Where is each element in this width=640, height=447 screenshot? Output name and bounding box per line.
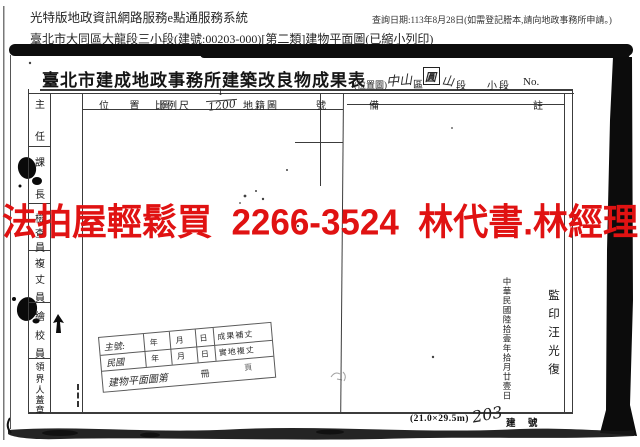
table-right-border-inner [564, 93, 565, 413]
building-no-label: 建 號 [506, 415, 542, 429]
section-char-box: 圓 [423, 67, 440, 85]
seal-keeper-stamp: 監印汪光復 [545, 289, 561, 391]
mini-book-label: 冊 [200, 366, 210, 380]
col-remark-right: 註 [533, 97, 543, 112]
mini-row1-note: 成果補丈 [217, 328, 254, 342]
table-left-border [28, 89, 29, 413]
district-value-handwritten: 中山 [385, 69, 413, 90]
number-cell-line [295, 142, 343, 143]
mini-minguo: 民國 [106, 355, 125, 370]
paper-size-label: (21.0×29.5m) [410, 414, 469, 424]
staff-char: 丈 [32, 271, 48, 286]
document-subtitle: 臺北市大同區大龍段三小段(建號:00203-000)[第二類]建物平面圖(已縮小… [30, 30, 433, 47]
mini-row2-note: 實地複丈 [218, 344, 255, 358]
table-top-border-inner [28, 93, 574, 94]
margin-column-divider [82, 93, 83, 413]
pencil-note-marks [331, 372, 345, 381]
printout-page: 光特版地政資訊網路服務e點通服務系統 查詢日期:113年8月28日(如需登記謄本… [0, 0, 640, 447]
staff-char: 章 [32, 403, 48, 416]
staff-column-divider [50, 93, 51, 413]
mini-page-label: 頁 [244, 362, 253, 374]
location-map-note: (位置圖) [354, 78, 387, 91]
mini-day: 日 [199, 332, 208, 344]
col-scale-label: 比例尺 [155, 97, 191, 112]
staff-char: 主 [32, 96, 48, 111]
staff-char: 課 [32, 154, 48, 169]
mini-year2: 年 [151, 353, 160, 365]
system-title: 光特版地政資訊網路服務e點通服務系統 [30, 7, 248, 26]
date-stamp-vertical: 中華民國陸拾壹年拾月廿壹日 [501, 277, 513, 397]
staff-cell-divider [28, 146, 50, 147]
staff-char: 長 [32, 186, 48, 201]
mini-month: 月 [175, 335, 184, 347]
staff-char: 繪 [32, 308, 48, 323]
section-label: 段 [456, 77, 466, 92]
scan-right-edge-bar [600, 57, 637, 436]
staff-char: 任 [32, 128, 48, 143]
red-watermark-text: 法拍屋輕鬆買 2266-3524 林代書.林經理 [2, 201, 638, 245]
staff-char: 校 [32, 327, 48, 342]
mini-main-no: 主號: [103, 339, 125, 354]
mini-month2: 月 [177, 351, 186, 363]
staff-char: 複 [32, 255, 48, 270]
dashed-tick-mark [77, 384, 79, 407]
section-value-char1: 圓 [425, 69, 436, 85]
col-number: 號 [316, 97, 326, 112]
mini-day2: 日 [200, 348, 209, 360]
scale-numerator: 1 [218, 87, 223, 97]
staff-char: 員 [32, 289, 48, 304]
header-underline-right [347, 104, 564, 105]
form-title: 臺北市建成地政事務所建築改良物成果表 [42, 66, 366, 91]
mini-row3-label: 建物平面圖第 [107, 369, 168, 389]
staff-char: 員 [32, 345, 48, 360]
table-right-border-outer [572, 89, 573, 413]
section-value-char2: 山 [441, 71, 455, 90]
arrow-mark [53, 314, 64, 333]
col-cadastral-map: 地籍圖 [243, 97, 279, 112]
query-date: 查詢日期:113年8月28日(如需登記謄本,請向地政事務所申請。) [372, 13, 612, 26]
no-label: No. [523, 76, 539, 88]
subsection-label: 小段 [487, 77, 511, 92]
col-remark-left: 備 [369, 97, 379, 112]
mini-year: 年 [149, 337, 158, 349]
district-label: 區 [413, 76, 423, 91]
